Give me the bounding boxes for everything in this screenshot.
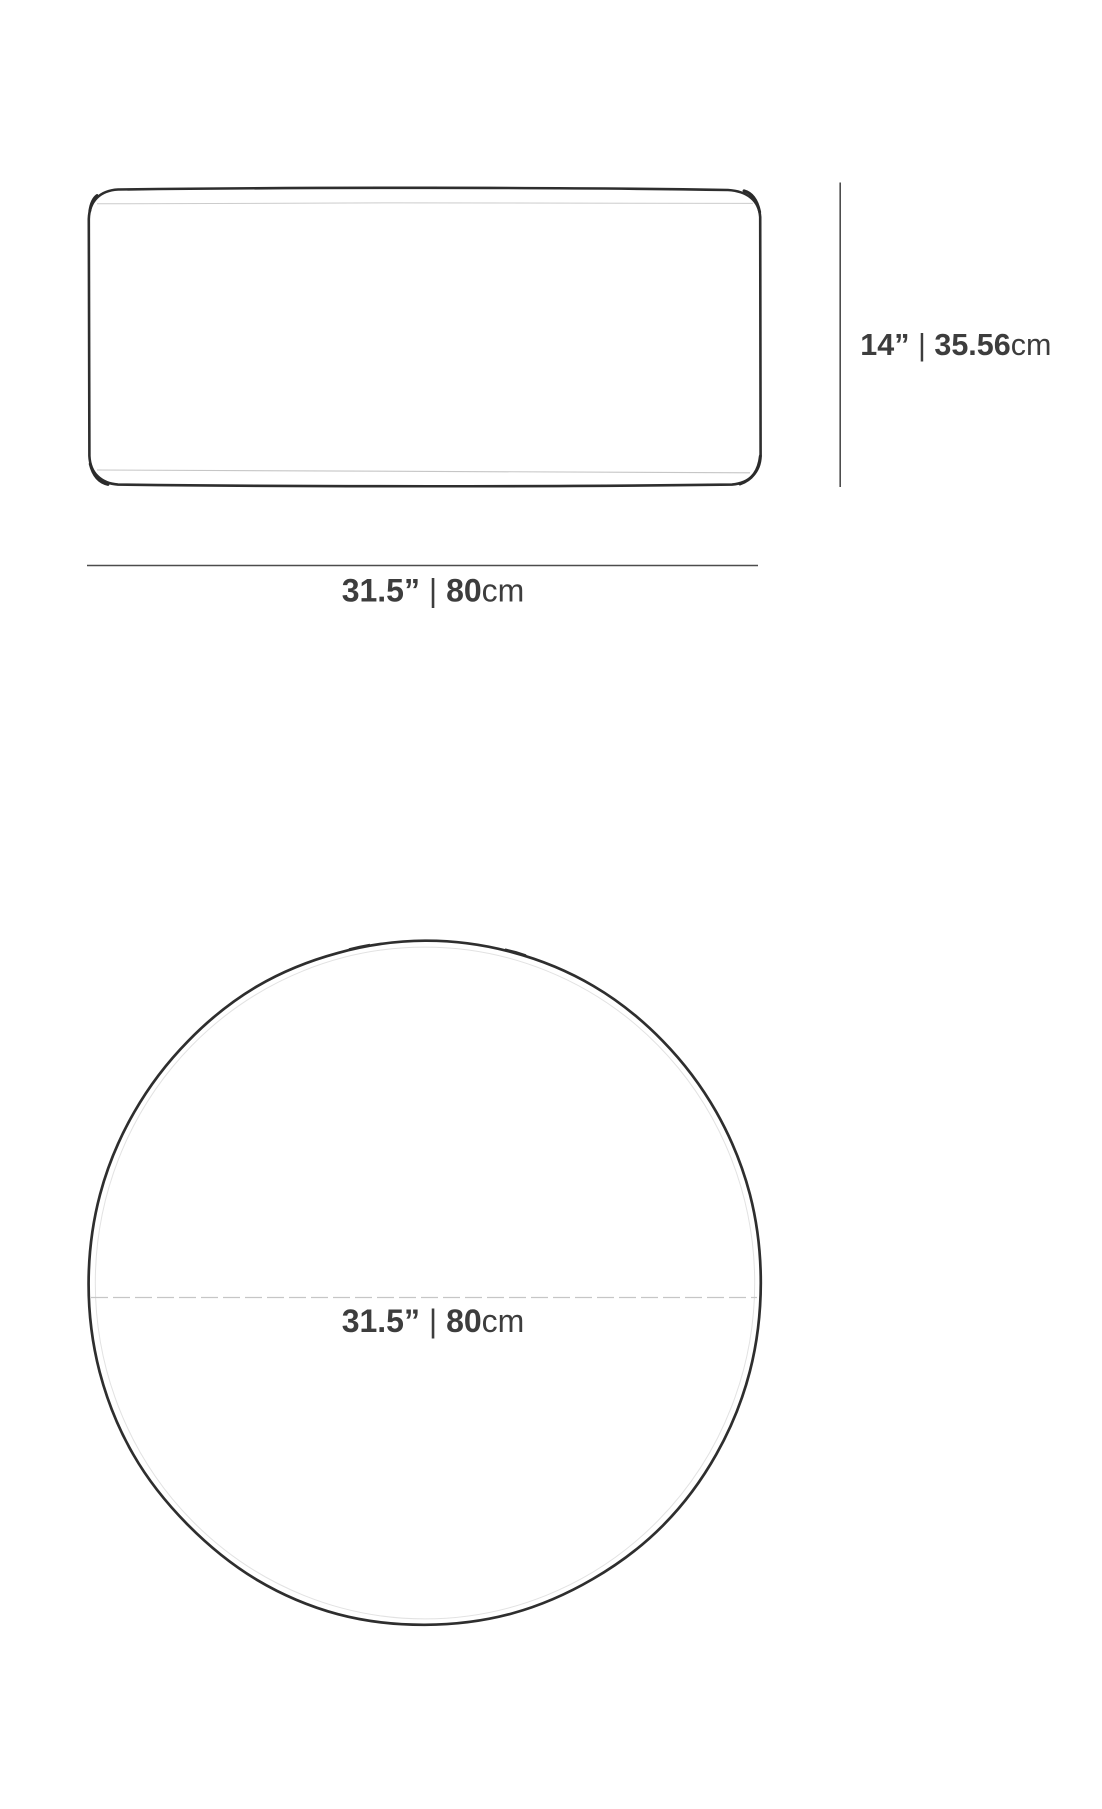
svg-text:31.5” | 80cm: 31.5” | 80cm	[342, 1303, 525, 1339]
svg-text:14” | 35.56cm: 14” | 35.56cm	[860, 328, 1051, 362]
svg-text:31.5” | 80cm: 31.5” | 80cm	[342, 572, 525, 608]
